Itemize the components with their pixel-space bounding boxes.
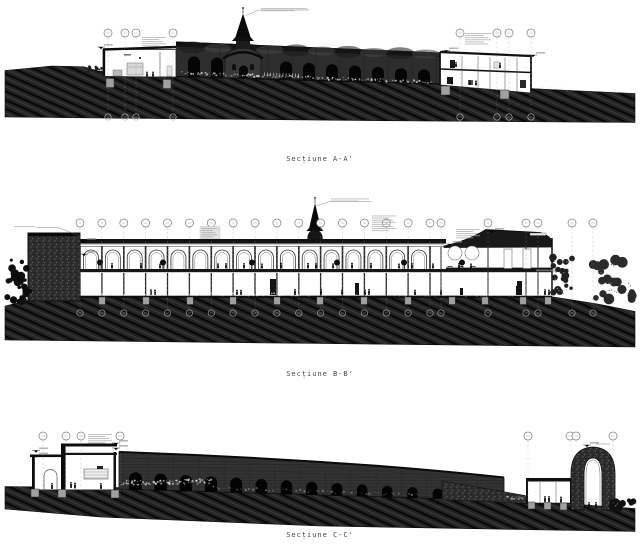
sections-svg [0, 0, 640, 544]
vegetation [8, 71, 572, 500]
section-b-drawing [28, 197, 564, 305]
section-b-caption: Secțiune B-B' [0, 370, 640, 378]
stone-portal-c [571, 447, 615, 510]
section-a-caption: Secțiune A-A' [0, 155, 640, 163]
tower-b [305, 197, 372, 242]
architectural-sheet: Secțiune A-A' Secțiune B-B' Secțiune C-C… [0, 0, 640, 544]
stone-wall-b [28, 233, 80, 301]
arcade-roof-b [80, 239, 446, 244]
cut-room-left-a [103, 47, 176, 77]
section-c-caption: Secțiune C-C' [0, 531, 640, 539]
